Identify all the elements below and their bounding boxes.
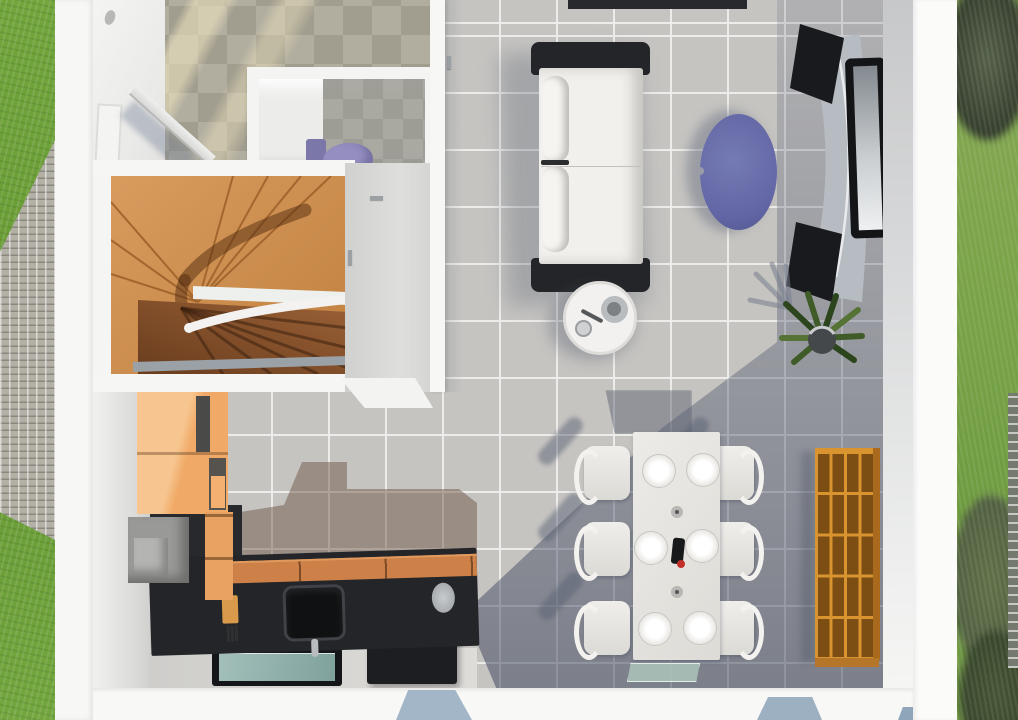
cabinet-gap bbox=[196, 396, 210, 452]
plate bbox=[634, 531, 668, 565]
dining-table-shadow bbox=[600, 390, 692, 434]
sideboard-cutoff[interactable] bbox=[568, 0, 747, 9]
hall-living-wall bbox=[430, 0, 445, 392]
stair-bottom-wall bbox=[93, 374, 355, 392]
kitchen-sink[interactable] bbox=[282, 584, 346, 642]
coffee-table[interactable] bbox=[700, 114, 777, 230]
cup-icon bbox=[575, 320, 592, 337]
cabinet-door[interactable] bbox=[211, 476, 225, 508]
cube-shelf-unit[interactable] bbox=[815, 448, 879, 660]
railing-post bbox=[184, 323, 194, 333]
left-exterior-wall bbox=[55, 0, 93, 720]
sofa[interactable] bbox=[531, 42, 650, 292]
plate bbox=[642, 454, 676, 488]
stair-left-wall bbox=[93, 160, 111, 392]
cooktop[interactable] bbox=[212, 648, 342, 686]
cobble-strip bbox=[1008, 393, 1018, 668]
stair-east-wall bbox=[345, 163, 443, 392]
dining-chair[interactable] bbox=[584, 446, 630, 500]
wine-bottle-cap bbox=[677, 560, 685, 568]
plate bbox=[638, 612, 672, 646]
cooker[interactable] bbox=[128, 517, 189, 583]
plant-shadow bbox=[750, 264, 790, 308]
plate bbox=[683, 611, 717, 645]
potted-plant[interactable] bbox=[742, 252, 872, 372]
cooktop-glass bbox=[219, 653, 335, 681]
utensil-icon bbox=[227, 626, 231, 642]
right-interior-wall bbox=[883, 0, 913, 697]
dining-chair[interactable] bbox=[584, 522, 630, 576]
glass-floor-mat bbox=[627, 663, 700, 682]
dining-chair[interactable] bbox=[584, 601, 630, 655]
kitchen-counter[interactable] bbox=[148, 548, 479, 656]
cushion-crease bbox=[541, 160, 569, 165]
staircase[interactable] bbox=[93, 160, 355, 392]
hall-wall-shelf[interactable] bbox=[94, 103, 122, 166]
lower-cabinet[interactable] bbox=[205, 512, 233, 600]
cabinet-divider bbox=[137, 452, 228, 455]
back-cushion bbox=[541, 166, 569, 252]
stair-top-wall bbox=[93, 160, 355, 176]
dining-table[interactable] bbox=[633, 432, 720, 660]
door-handle-icon[interactable] bbox=[348, 250, 352, 265]
shelf-shadow bbox=[801, 452, 815, 662]
candle-holder bbox=[671, 506, 683, 518]
shelf-side-face bbox=[873, 448, 880, 660]
counter-jar bbox=[431, 582, 455, 613]
back-cushion bbox=[541, 76, 569, 162]
wc-floor bbox=[259, 79, 425, 165]
candle-holder bbox=[671, 586, 683, 598]
floor-plan-render bbox=[0, 0, 1018, 720]
wall-shadow-strip bbox=[443, 0, 463, 392]
shrub bbox=[957, 0, 1018, 140]
table-knob bbox=[696, 167, 704, 175]
door-handle-icon[interactable] bbox=[447, 56, 451, 69]
shelf-bottom-face bbox=[815, 658, 879, 667]
bowl-icon bbox=[601, 296, 628, 323]
cooker-top bbox=[134, 538, 168, 576]
counter-wood-edge bbox=[215, 554, 478, 584]
door-handle-icon[interactable] bbox=[370, 196, 383, 200]
right-exterior-wall bbox=[913, 0, 957, 720]
plate bbox=[685, 529, 719, 563]
plate bbox=[686, 453, 720, 487]
entry-step bbox=[757, 697, 822, 720]
side-table[interactable] bbox=[563, 281, 637, 355]
faucet-icon[interactable] bbox=[311, 639, 319, 657]
